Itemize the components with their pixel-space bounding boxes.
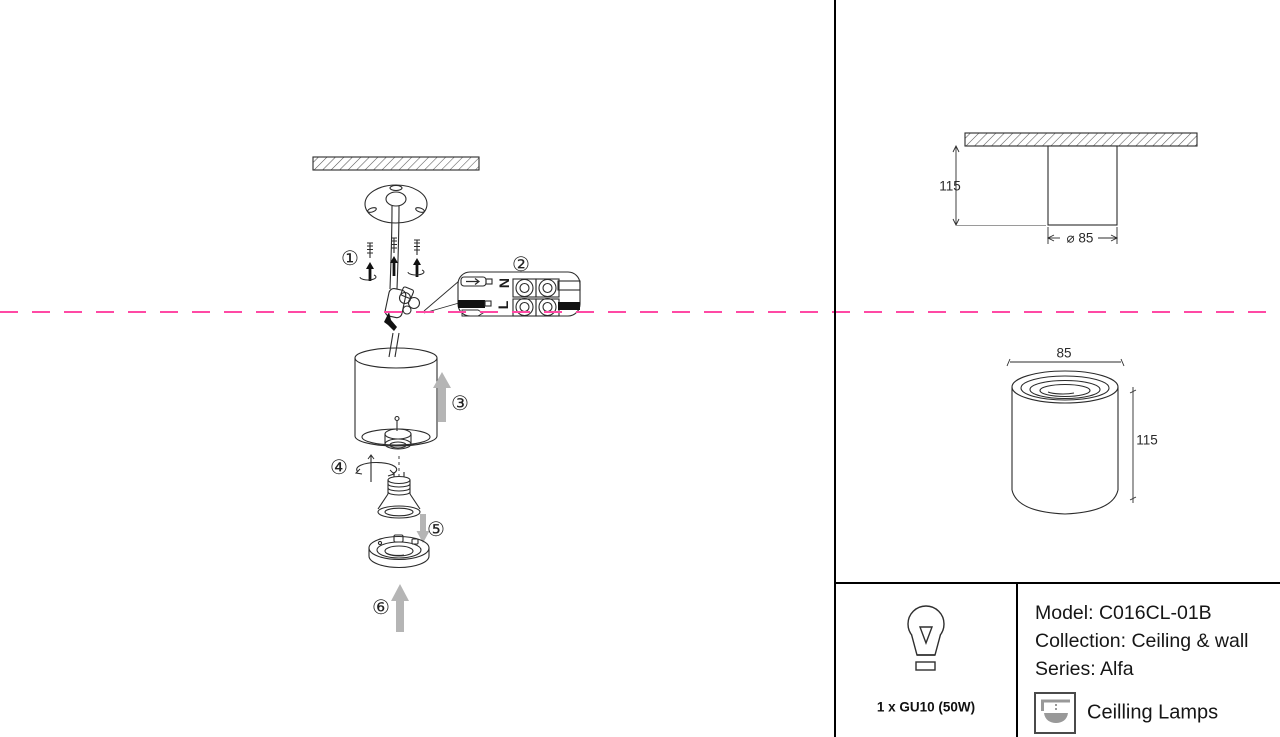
ceiling-hatch [313,157,479,170]
category-label: Ceilling Lamps [1087,702,1218,725]
front-diameter-dim: ⌀ 85 [1063,231,1098,245]
spec-panel-border-top [835,582,1280,584]
screw-icons [360,238,424,281]
live-wire-label: L [496,301,510,310]
rotate-symbol [356,455,399,482]
step-2-label: ② [512,254,530,274]
step-3-label: ③ [451,393,469,413]
mounting-bracket [384,286,420,357]
installation-diagram [313,157,580,632]
product-spec: Model: C016CL-01B Collection: Ceiling & … [1035,599,1249,683]
trim-ring [369,535,429,568]
front-view-drawing [953,133,1197,244]
arrow-up-step3 [433,372,451,422]
series-line: Series: Alfa [1035,655,1249,683]
front-height-dim: 115 [939,179,961,193]
bulb-spec-label: 1 x GU10 (50W) [877,700,975,714]
iso-height-dim: 115 [1136,433,1158,447]
iso-view-drawing [1007,359,1136,514]
canopy-plate [365,185,427,223]
dim-height-front [953,146,1046,226]
lamp-body [355,348,437,449]
step-1-label: ① [341,248,359,268]
panel-divider-vertical [834,0,836,737]
ceiling-lamp-icon [1035,693,1075,733]
cut-line [0,311,1280,313]
iso-width-dim: 85 [1056,346,1071,360]
manual-page: ① ② ③ ④ ⑤ ⑥ N L 115 ⌀ 85 85 115 1 x GU10… [0,0,1280,737]
terminal-block [458,272,580,316]
leader-lines [424,281,459,313]
arrow-up-step6 [391,584,409,632]
neutral-wire-label: N [497,278,511,288]
step-6-label: ⑥ [372,597,390,617]
model-line: Model: C016CL-01B [1035,599,1249,627]
step-4-label: ④ [330,457,348,477]
collection-line: Collection: Ceiling & wall [1035,627,1249,655]
gu10-bulb [378,472,420,518]
dim-height-iso [1130,387,1136,503]
spec-cell-divider [1016,584,1018,737]
bulb-icon [908,606,944,670]
step-5-label: ⑤ [427,519,445,539]
